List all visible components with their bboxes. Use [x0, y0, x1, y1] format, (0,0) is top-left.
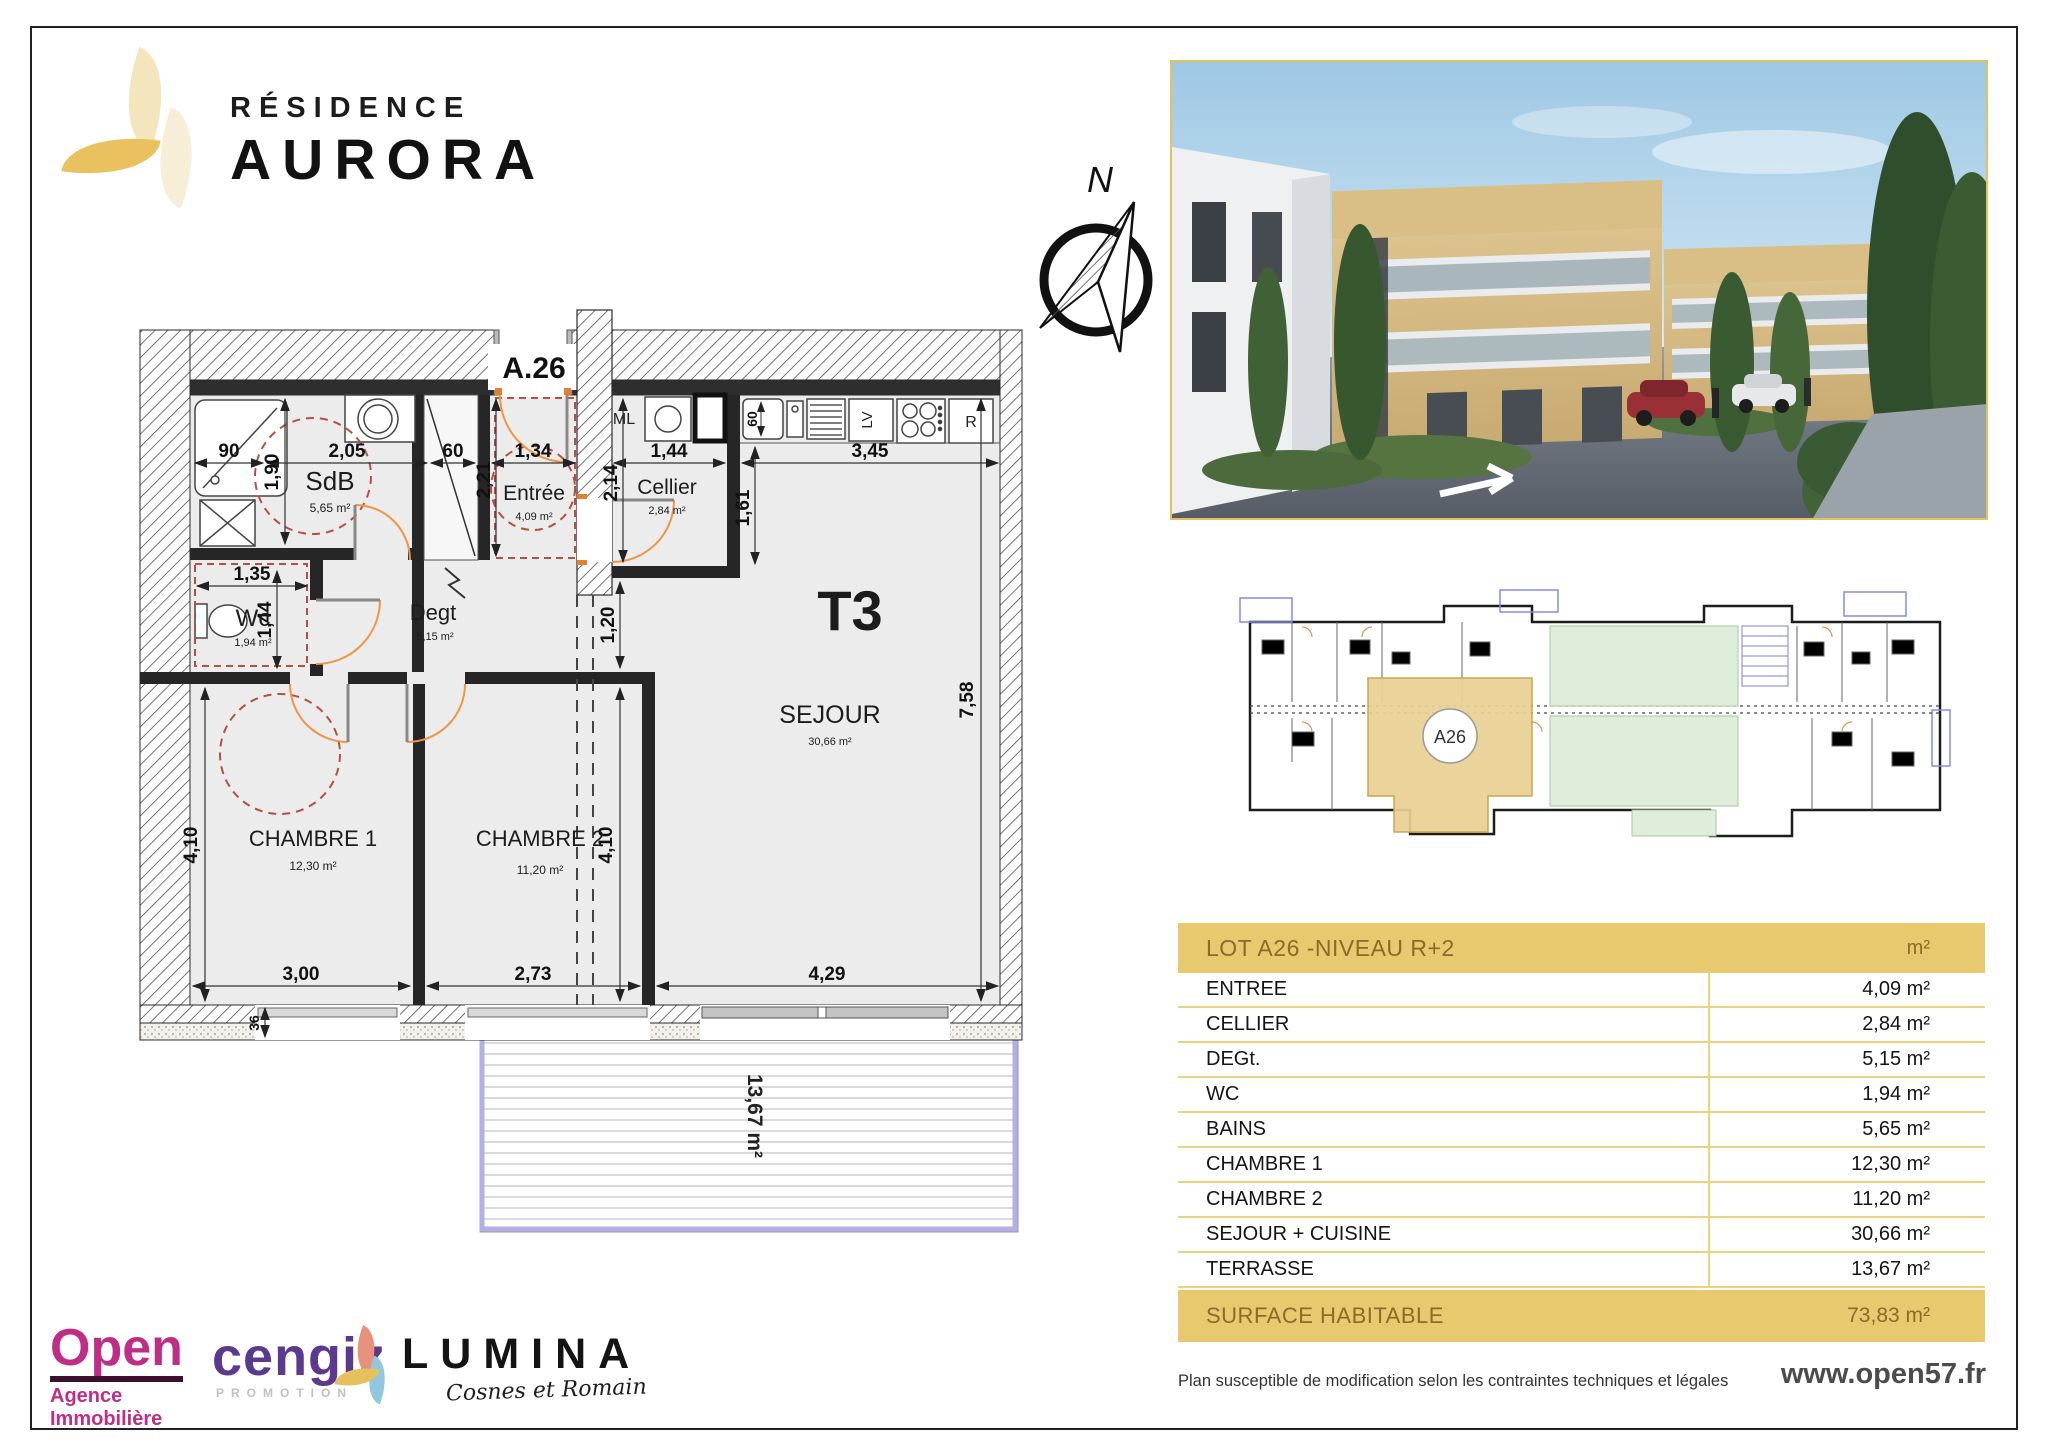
room-degt: Degt — [410, 600, 456, 625]
svg-text:90: 90 — [218, 441, 239, 462]
svg-text:1,20: 1,20 — [598, 607, 619, 644]
room-ch1: CHAMBRE 1 — [249, 826, 377, 851]
svg-text:3,00: 3,00 — [283, 964, 320, 985]
terrace: 13,67 m² — [480, 1040, 1018, 1232]
fridge-label: R — [965, 414, 977, 431]
north-label: N — [1087, 159, 1114, 200]
building-render-photo — [1170, 60, 1988, 520]
north-compass-icon: N — [1022, 158, 1182, 368]
toilet-icon — [195, 604, 207, 638]
patio-green-3 — [1632, 810, 1716, 836]
svg-text:2,14: 2,14 — [601, 464, 622, 501]
room-ch2-area: 11,20 m² — [517, 863, 563, 877]
room-ch2: CHAMBRE 2 — [476, 826, 604, 851]
lumina-leaf-icon — [336, 1328, 392, 1406]
svg-text:1,61: 1,61 — [733, 489, 754, 526]
brochure-page: RÉSIDENCE AURORA N — [0, 0, 2048, 1447]
svg-text:2,05: 2,05 — [329, 441, 366, 462]
svg-text:60: 60 — [744, 411, 760, 427]
entry-door-area: A.26 — [488, 328, 580, 397]
room-sejour-area: 30,66 m² — [808, 736, 852, 748]
cooktop-icon — [897, 399, 945, 443]
room-sejour: SEJOUR — [779, 701, 880, 729]
svg-text:1,90: 1,90 — [262, 454, 283, 491]
svg-text:36: 36 — [246, 1015, 262, 1031]
lot-title: LOT A26 -NIVEAU R+2 — [1178, 935, 1710, 962]
room-degt-area: 5,15 m² — [416, 631, 454, 643]
room-cellier: Cellier — [637, 476, 697, 499]
room-sdb-area: 5,65 m² — [310, 501, 351, 515]
windows — [255, 1005, 950, 1040]
surface-habitable-row: SURFACE HABITABLE 73,83 m² — [1178, 1290, 1985, 1342]
table-row: ENTREE4,09 m² — [1178, 973, 1985, 1008]
website-url: www.open57.fr — [1781, 1358, 1986, 1391]
table-row: WC1,94 m² — [1178, 1078, 1985, 1113]
terrace-area-label: 13,67 m² — [743, 1074, 766, 1158]
level-key-plan: A26 — [1232, 582, 1958, 912]
areas-table: LOT A26 -NIVEAU R+2 m² ENTREE4,09 m² CEL… — [1178, 923, 1985, 1342]
aurora-leaf-icon — [58, 48, 223, 213]
unit-number-badge: A.26 — [502, 352, 565, 385]
unit-column-header: m² — [1710, 937, 1985, 960]
kitchen-appliances: ML LV R 60 — [613, 395, 1000, 443]
patio-green-1 — [1550, 626, 1738, 706]
disclaimer-text: Plan susceptible de modification selon l… — [1178, 1372, 1738, 1391]
table-row: SEJOUR + CUISINE30,66 m² — [1178, 1218, 1985, 1253]
svg-text:2,73: 2,73 — [515, 964, 552, 985]
room-entree: Entrée — [503, 482, 565, 505]
keyplan-unit-badge: A26 — [1434, 727, 1466, 747]
svg-text:7,58: 7,58 — [957, 682, 978, 719]
table-row: CHAMBRE 211,20 m² — [1178, 1183, 1985, 1218]
svg-text:3,45: 3,45 — [852, 441, 889, 462]
washer-label: ML — [613, 411, 635, 428]
room-entree-area: 4,09 m² — [515, 511, 553, 523]
svg-text:1,35: 1,35 — [234, 564, 271, 585]
party-wall — [577, 310, 612, 595]
stairs-icon — [1742, 626, 1788, 686]
type-label: T3 — [817, 579, 882, 642]
brand-aurora: AURORA — [230, 127, 546, 193]
dishwasher-label: LV — [859, 411, 876, 428]
table-row: TERRASSE13,67 m² — [1178, 1253, 1985, 1288]
room-wc: Wc — [236, 605, 271, 632]
residence-logo: RÉSIDENCE AURORA — [58, 48, 598, 218]
room-wc-area: 1,94 m² — [234, 637, 272, 649]
table-row: BAINS5,65 m² — [1178, 1113, 1985, 1148]
svg-text:2,21: 2,21 — [474, 461, 495, 498]
room-ch1-area: 12,30 m² — [289, 859, 336, 873]
svg-text:4,10: 4,10 — [181, 827, 202, 864]
svg-text:1,44: 1,44 — [651, 441, 688, 462]
room-sdb: SdB — [305, 466, 354, 496]
brand-residence: RÉSIDENCE — [230, 92, 546, 125]
floor-plan: 13,67 m² A.26 — [115, 268, 1035, 1248]
svg-text:4,29: 4,29 — [809, 964, 846, 985]
svg-text:60: 60 — [442, 441, 463, 462]
patio-green-2 — [1550, 716, 1738, 806]
table-row: DEGt.5,15 m² — [1178, 1043, 1985, 1078]
table-row: CELLIER2,84 m² — [1178, 1008, 1985, 1043]
svg-text:1,34: 1,34 — [515, 441, 552, 462]
table-row: CHAMBRE 112,30 m² — [1178, 1148, 1985, 1183]
room-cellier-area: 2,84 m² — [648, 505, 686, 517]
areas-table-header: LOT A26 -NIVEAU R+2 m² — [1178, 923, 1985, 973]
